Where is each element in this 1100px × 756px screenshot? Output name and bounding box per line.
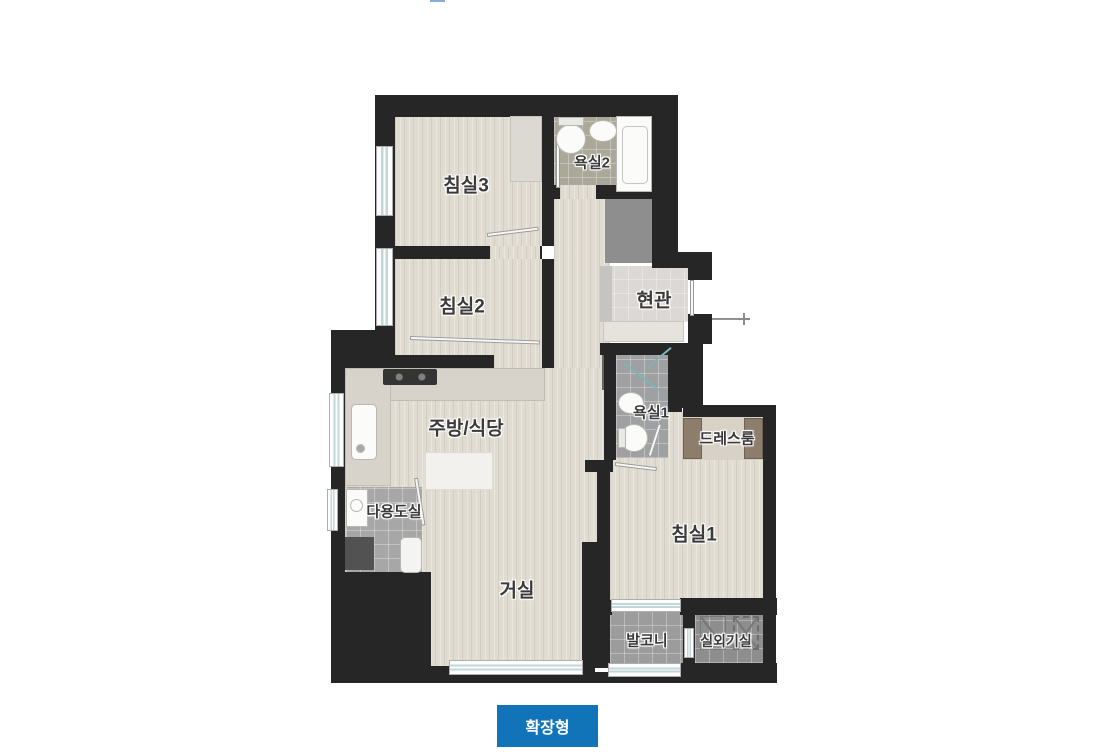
washer-door: [350, 499, 363, 512]
wall: [680, 346, 703, 408]
room-label-bathroom2: 욕실2: [574, 152, 610, 173]
wall: [375, 95, 678, 117]
shoe-cabinet: [603, 321, 684, 342]
room-label-bedroom2: 침실2: [439, 292, 485, 319]
stove-icon: [383, 369, 437, 385]
room-label-entrance: 현관: [637, 286, 672, 313]
wall: [652, 252, 712, 268]
door-opening: [560, 185, 596, 199]
faucet-icon: [356, 444, 365, 453]
toilet-icon: [556, 124, 586, 154]
wall: [585, 460, 613, 472]
room-label-utility: 다용도실: [366, 501, 421, 522]
bathtub-inner: [622, 126, 648, 184]
expand-type-button[interactable]: 확장형: [497, 705, 598, 747]
utility-window: [327, 489, 338, 531]
utility-mat: [400, 537, 422, 573]
living-window: [449, 660, 583, 675]
bedroom1-window: [611, 599, 681, 612]
kitchen-window: [329, 393, 344, 467]
wall: [331, 572, 431, 683]
entrance-door-marker-icon: [738, 313, 750, 325]
wall: [604, 346, 616, 460]
wall: [688, 314, 712, 344]
room-label-dressroom: 드레스룸: [699, 428, 754, 449]
dining-island: [425, 452, 493, 490]
room-label-outdoor-unit: 실외기실: [700, 631, 752, 651]
room-label-bathroom1: 욕실1: [633, 402, 669, 423]
wall: [688, 268, 712, 280]
floor-plan: 침실3 욕실2 침실2 현관 주방/식당 욕실1 드레스룸 다용도실 침실1 거…: [0, 0, 1100, 756]
room-label-bedroom3: 침실3: [443, 171, 489, 198]
room-label-bedroom1: 침실1: [671, 520, 717, 547]
floor-plan-page: 침실3 욕실2 침실2 현관 주방/식당 욕실1 드레스룸 다용도실 침실1 거…: [0, 0, 1100, 756]
wall: [542, 259, 554, 355]
door-opening: [490, 246, 540, 259]
entrance-door-leaf: [690, 280, 694, 316]
door-opening: [494, 355, 542, 368]
toilet-tank: [558, 117, 584, 126]
wall: [763, 405, 776, 683]
wall: [683, 405, 763, 417]
toilet-tank: [618, 428, 626, 448]
balcony-divider-window: [684, 628, 694, 658]
wall: [542, 113, 554, 246]
kitchen-sink: [351, 404, 377, 460]
bedroom3-window: [376, 146, 393, 216]
entrance-step: [600, 266, 612, 322]
room-label-balcony: 발코니: [626, 630, 667, 651]
room-label-living: 거실: [500, 576, 535, 603]
wall: [597, 472, 610, 542]
wall: [680, 663, 777, 683]
balcony-window: [608, 663, 681, 677]
room-label-kitchen: 주방/식당: [428, 414, 503, 441]
duct-shaft: [605, 197, 658, 263]
bedroom2-window: [376, 248, 393, 326]
wall: [597, 600, 612, 615]
wall: [652, 95, 678, 255]
bedroom3-closet: [510, 116, 542, 182]
wall: [668, 354, 682, 412]
sink-icon: [589, 120, 617, 142]
